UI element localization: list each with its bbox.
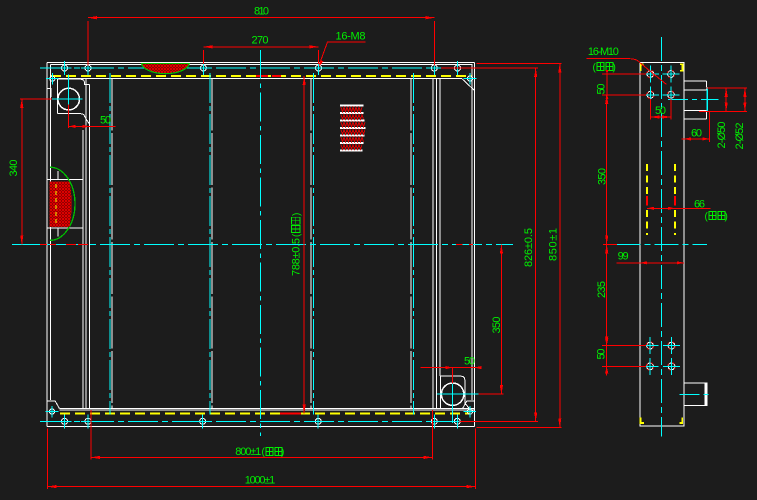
svg-text:788±0.5: 788±0.5: [291, 238, 303, 276]
svg-text:): ): [281, 447, 284, 458]
svg-text:50: 50: [100, 115, 111, 127]
svg-text:(: (: [705, 212, 709, 223]
svg-text:50: 50: [596, 84, 608, 95]
svg-text:350: 350: [491, 317, 503, 334]
svg-text:16-M10: 16-M10: [588, 46, 619, 58]
svg-text:): ): [292, 213, 303, 216]
svg-text:235: 235: [596, 281, 608, 298]
svg-text:826±0.5: 826±0.5: [523, 228, 535, 267]
svg-text:350: 350: [597, 168, 609, 185]
svg-text:800±1: 800±1: [235, 446, 261, 458]
svg-text:340: 340: [8, 160, 20, 177]
svg-text:66: 66: [694, 198, 705, 210]
svg-text:810: 810: [254, 6, 269, 18]
svg-text:2-Ø50: 2-Ø50: [716, 122, 728, 149]
svg-text:2-Ø52: 2-Ø52: [734, 123, 746, 150]
svg-text:(: (: [292, 233, 303, 237]
svg-text:850±1: 850±1: [547, 228, 559, 261]
svg-text:50: 50: [596, 349, 608, 360]
svg-text:270: 270: [252, 35, 269, 47]
svg-text:60: 60: [691, 128, 702, 140]
svg-text:(: (: [593, 63, 597, 74]
svg-text:99: 99: [618, 251, 629, 263]
svg-text:50: 50: [655, 105, 666, 117]
svg-text:16-M8: 16-M8: [336, 31, 366, 43]
svg-text:1000±1: 1000±1: [245, 474, 276, 486]
svg-text:50: 50: [464, 356, 475, 368]
svg-text:(: (: [262, 447, 266, 458]
